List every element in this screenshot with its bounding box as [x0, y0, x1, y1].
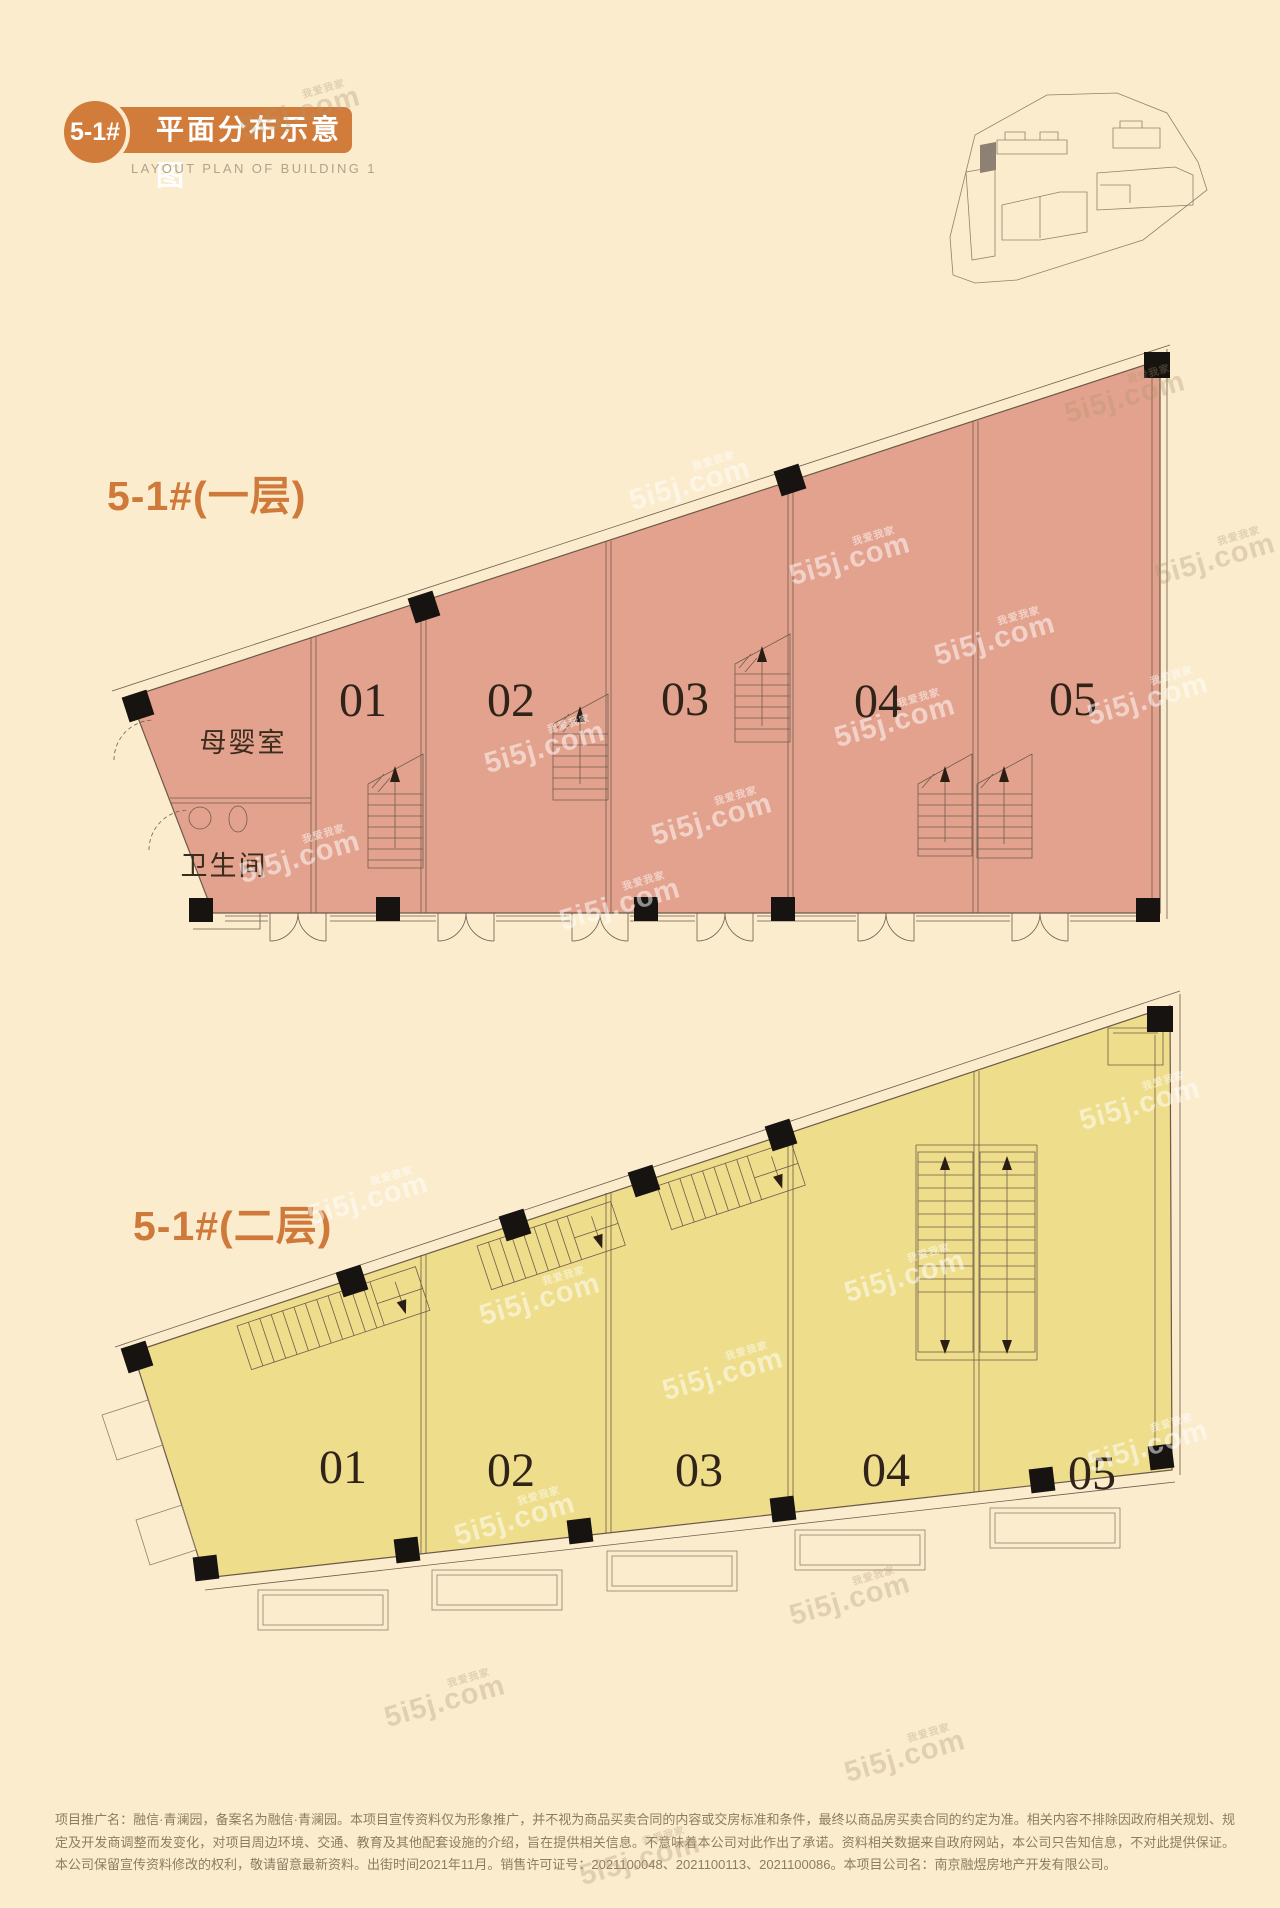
floorplan-graphics	[0, 0, 1280, 1908]
floor2-unit-04: 04	[831, 1443, 941, 1498]
window-sills	[225, 916, 1140, 921]
page-subtitle: LAYOUT PLAN OF BUILDING 1	[131, 161, 377, 176]
building-badge: 5-1#	[60, 97, 130, 167]
floor1-label: 5-1#(一层)	[107, 462, 306, 522]
floor2-plan	[102, 991, 1180, 1630]
site-plan	[950, 93, 1207, 283]
floor1-unit-01: 01	[308, 673, 418, 728]
floor2-unit-01: 01	[288, 1440, 398, 1495]
floor1-unit-03: 03	[630, 672, 740, 727]
layout-poster: { "colors": { "accent": "#d27c3c", "back…	[0, 0, 1280, 1908]
room-label-nursing: 母婴室	[173, 721, 313, 760]
disclaimer-line-3: 融煜房地产开发有限公司。	[960, 1857, 1116, 1872]
floor2-label: 5-1#(二层)	[133, 1192, 332, 1252]
floor2-unit-03: 03	[644, 1443, 754, 1498]
